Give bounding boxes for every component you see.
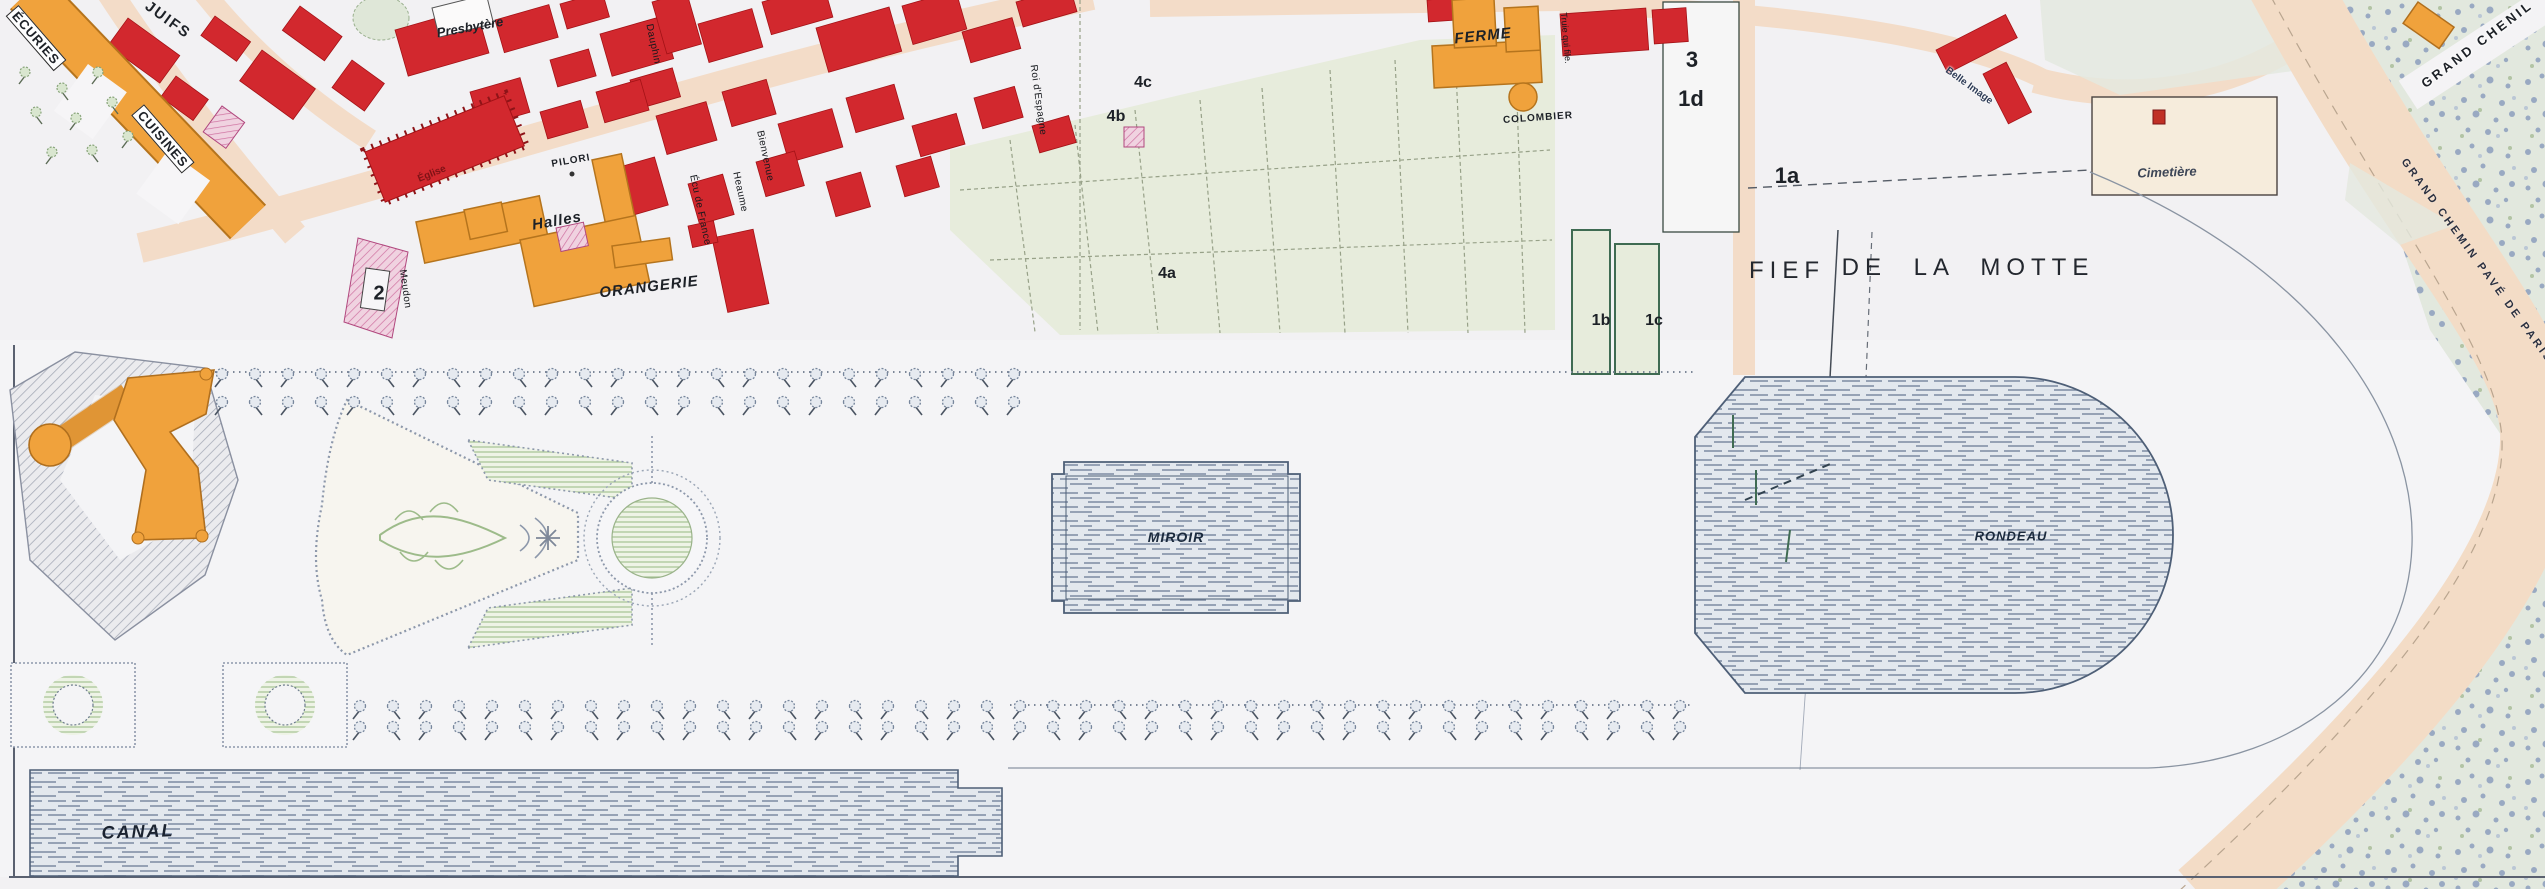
parcel-4b-building <box>1124 127 1144 147</box>
cemetery-chapel <box>2153 110 2165 124</box>
fountain-east <box>223 663 347 747</box>
cemetery <box>2092 97 2277 195</box>
plan-drawing <box>0 0 2545 889</box>
canal <box>30 770 1002 876</box>
fountain-west <box>11 663 135 747</box>
miroir-basin <box>1052 462 1300 613</box>
pilori-marker <box>570 172 575 177</box>
rondeau-basin <box>1695 377 2173 693</box>
colombier-dovecote <box>1509 83 1537 111</box>
estate-plan: JUIFSÉCURIESCUISINESPresbytèreÉglisePILO… <box>0 0 2545 889</box>
chateau-tower <box>29 424 71 466</box>
